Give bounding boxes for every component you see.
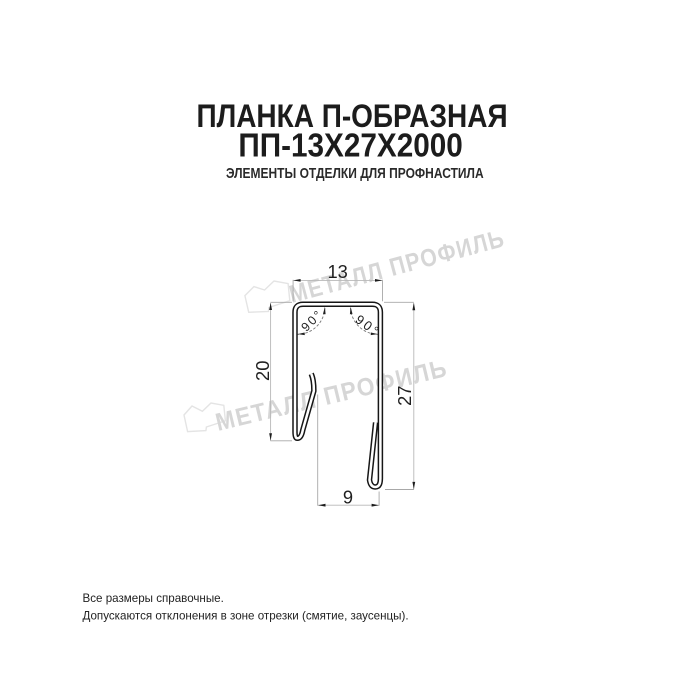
svg-text:20: 20 — [252, 361, 273, 381]
svg-text:27: 27 — [394, 386, 415, 406]
svg-text:ЭЛЕМЕНТЫ ОТДЕЛКИ ДЛЯ ПРОФНАСТИ: ЭЛЕМЕНТЫ ОТДЕЛКИ ДЛЯ ПРОФНАСТИЛА — [226, 165, 484, 182]
svg-text:МЕТАЛЛ ПРОФИЛЬ: МЕТАЛЛ ПРОФИЛЬ — [286, 224, 508, 308]
svg-text:90°: 90° — [299, 307, 327, 335]
svg-text:9: 9 — [343, 486, 353, 507]
svg-text:Все размеры справочные.: Все размеры справочные. — [83, 592, 224, 605]
svg-text:13: 13 — [328, 261, 348, 282]
svg-text:ПП-13Х27Х2000: ПП-13Х27Х2000 — [238, 126, 463, 164]
svg-text:Допускаются отклонения в зоне: Допускаются отклонения в зоне отрезки (с… — [83, 610, 409, 623]
